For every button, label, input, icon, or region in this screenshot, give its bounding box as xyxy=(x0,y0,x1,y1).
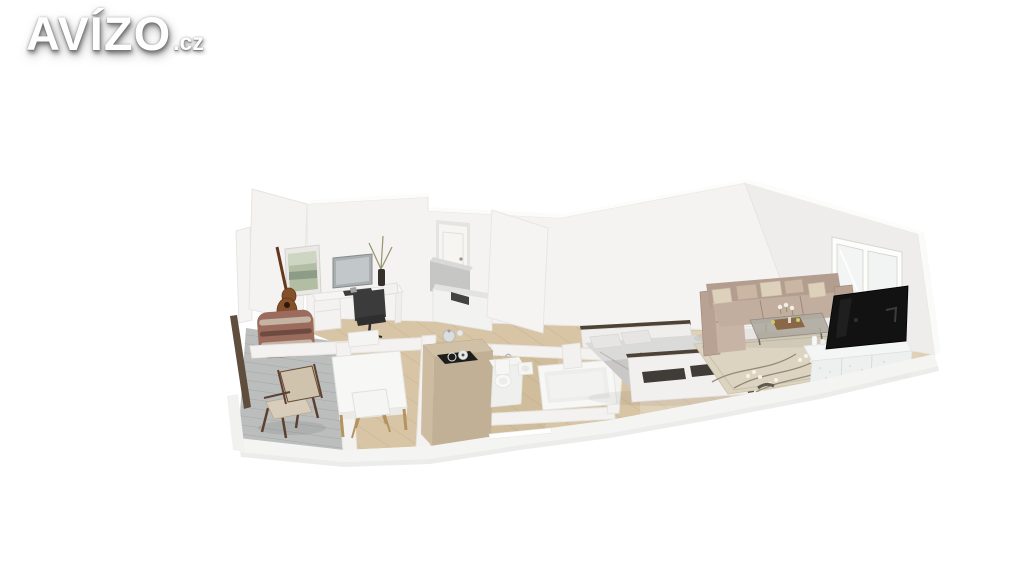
chair-shell xyxy=(352,389,390,418)
floorplan-render xyxy=(0,0,1024,576)
guitar-soundhole xyxy=(284,302,290,308)
render-canvas: AVÍZO.cz xyxy=(0,0,1024,576)
nightstand xyxy=(562,343,582,369)
armchair-shadow xyxy=(258,421,326,435)
pillow-left xyxy=(590,334,622,349)
pillow-1 xyxy=(712,288,732,304)
island-front-face xyxy=(432,351,493,449)
monitor-screen-inner xyxy=(336,257,369,285)
monitor-stand xyxy=(350,287,357,293)
flower-1 xyxy=(778,305,782,309)
door-handle xyxy=(459,257,462,260)
pillow-3 xyxy=(760,281,782,297)
pot-lid-knob xyxy=(462,354,465,357)
toilet-tank xyxy=(495,359,510,375)
pillow-2 xyxy=(736,284,758,300)
tv-logo-dot xyxy=(854,318,858,322)
toilet-seat xyxy=(499,378,508,385)
glass xyxy=(788,317,791,323)
desk-drawers xyxy=(314,298,341,331)
wall-hall-bedroom xyxy=(487,210,548,333)
flower-3 xyxy=(790,306,794,310)
kettle-lid xyxy=(448,330,451,333)
pillow-right xyxy=(621,330,652,345)
dining-chair-north xyxy=(348,330,379,347)
candle-2 xyxy=(796,318,800,322)
vase xyxy=(378,269,385,286)
pillow-5 xyxy=(808,282,826,298)
basin-bowl xyxy=(522,366,530,372)
island-west-face xyxy=(421,345,434,446)
stand-vase xyxy=(812,336,817,346)
pillow-4 xyxy=(784,279,804,294)
flower-2 xyxy=(784,303,788,307)
tv xyxy=(826,286,908,349)
jar xyxy=(457,330,463,336)
candle-1 xyxy=(771,320,775,324)
desk-leg-panel xyxy=(395,291,402,323)
stand-ball xyxy=(820,339,826,345)
